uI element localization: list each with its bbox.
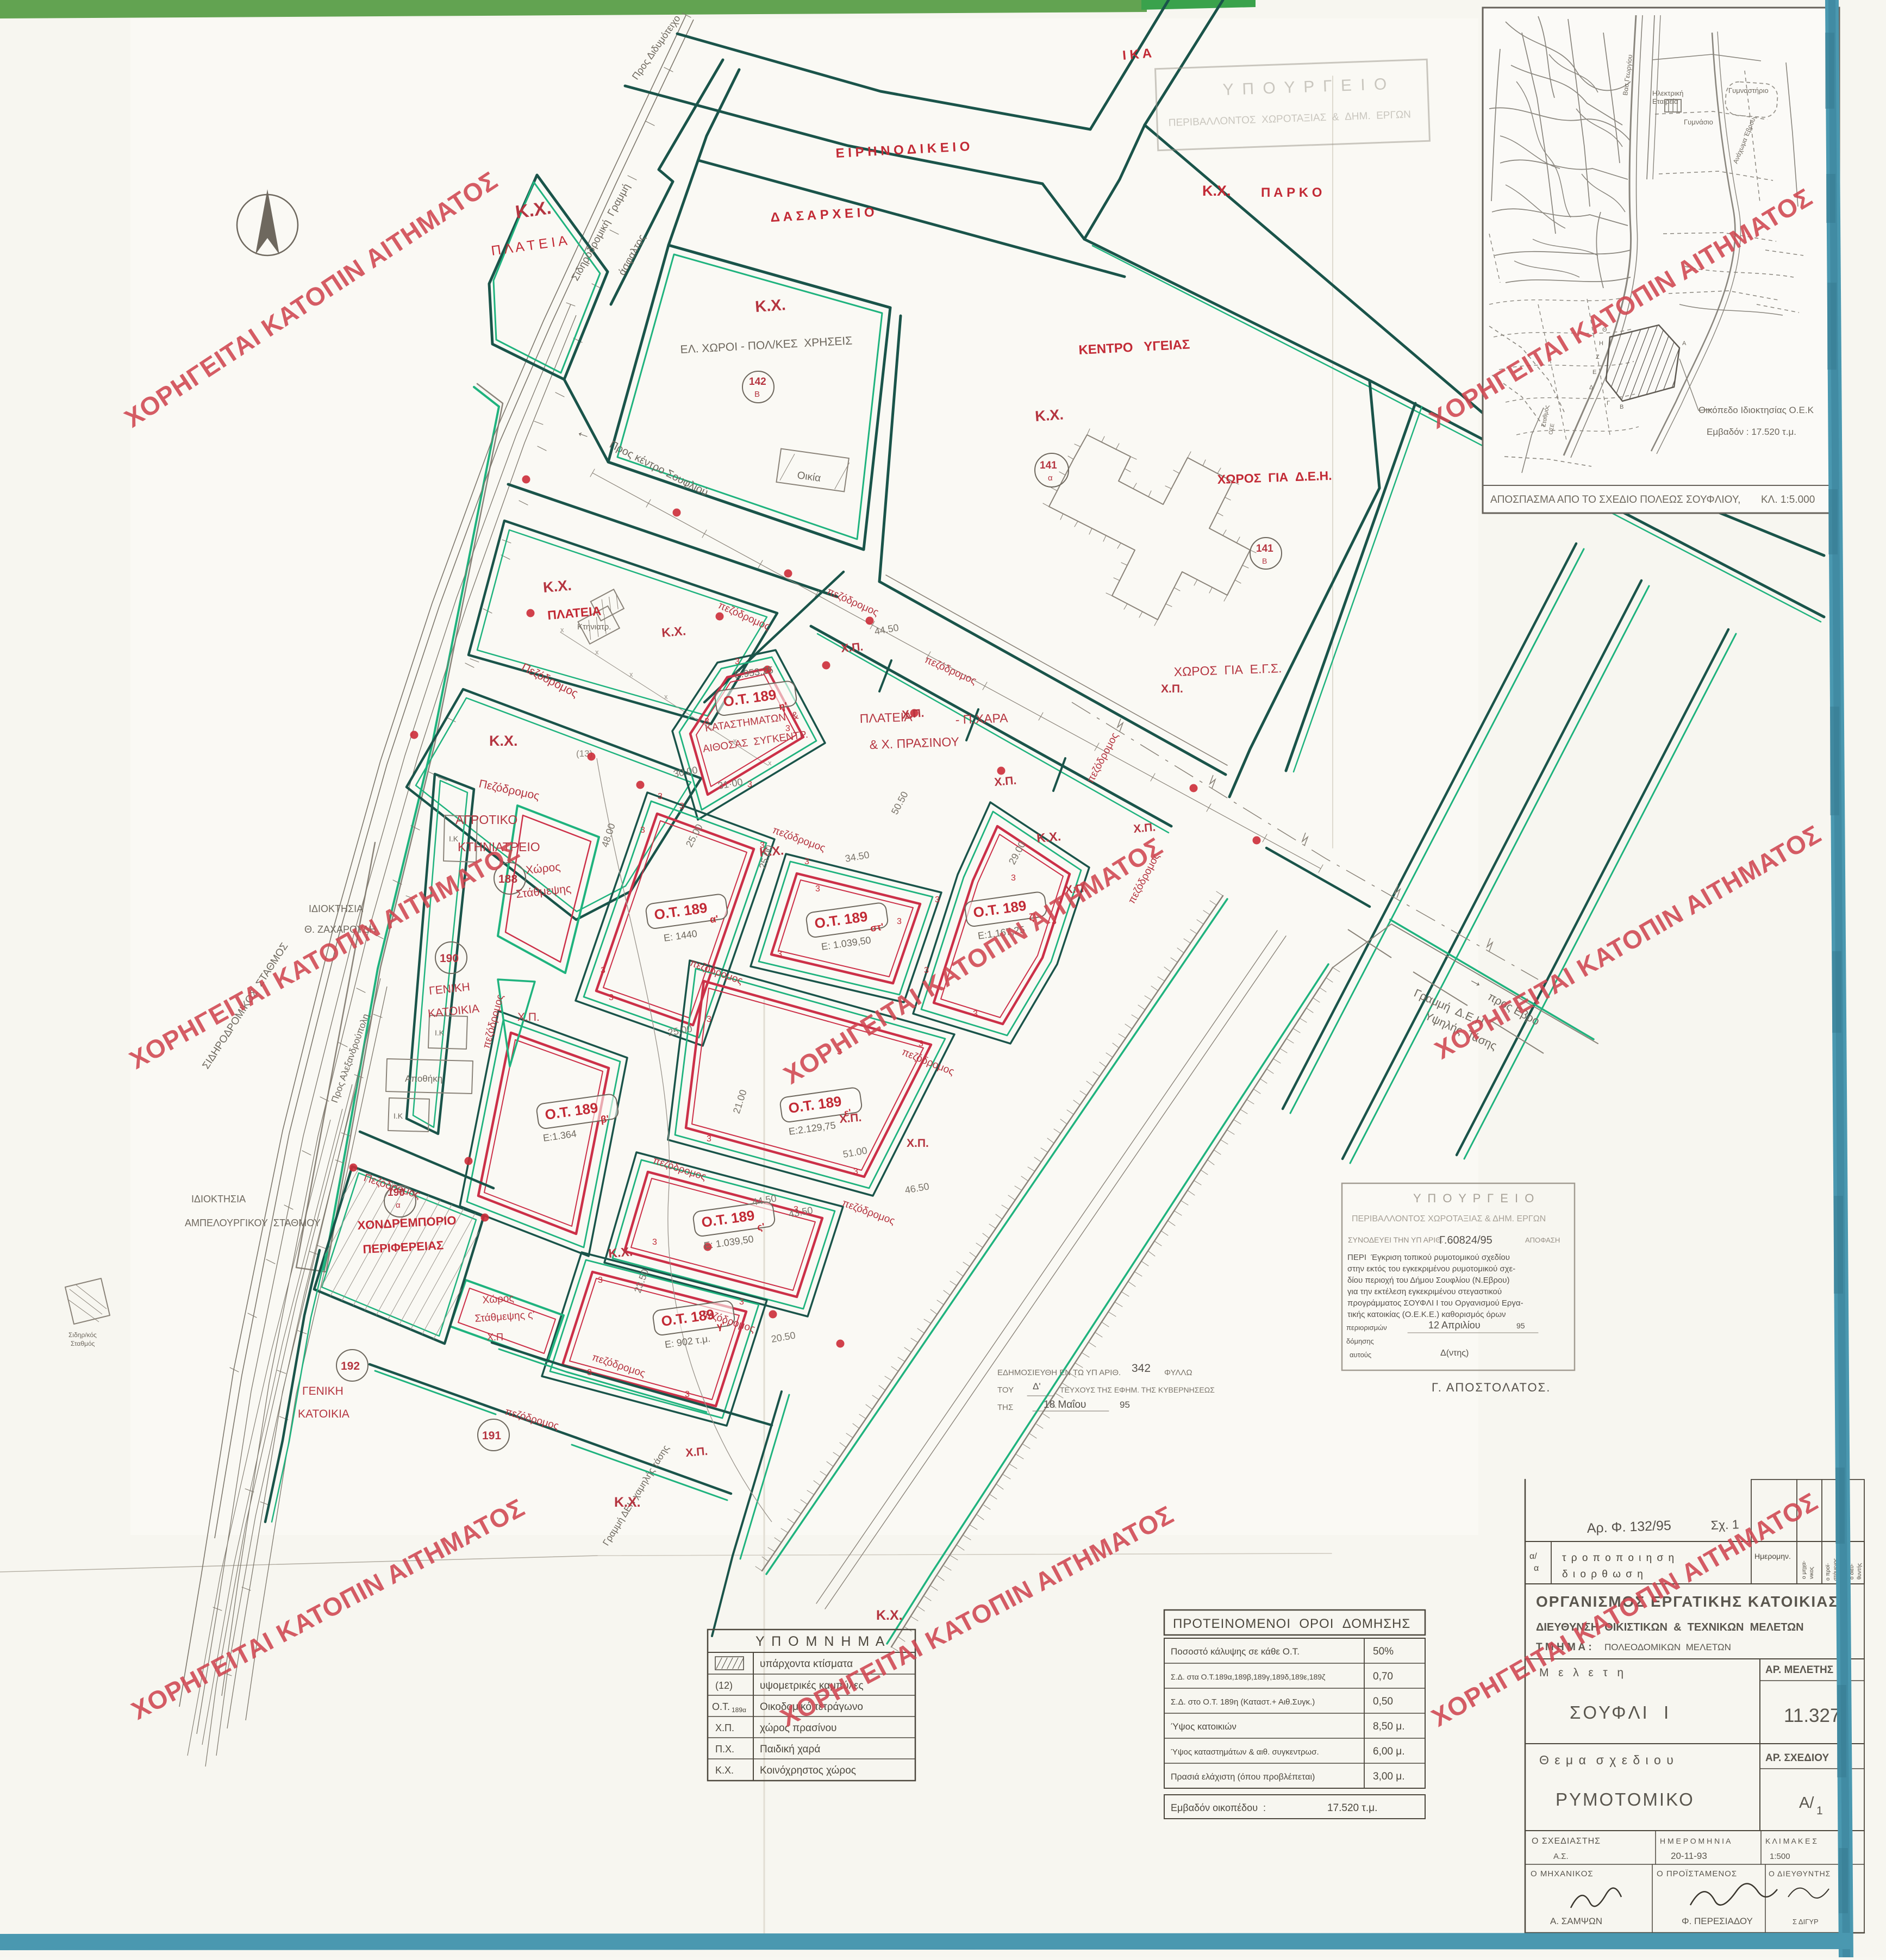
svg-text:Ημερομην.: Ημερομην. [1754,1552,1791,1560]
svg-text:ΚΑΤΟΙΚΙΑ: ΚΑΤΟΙΚΙΑ [298,1408,349,1420]
svg-text:192: 192 [341,1360,360,1372]
svg-text:3: 3 [919,1039,923,1048]
svg-text:11.327: 11.327 [1784,1705,1840,1726]
svg-text:x: x [768,759,772,767]
svg-text:Χ.Π.: Χ.Π. [901,707,925,721]
svg-text:ΚΛ. 1:5.000: ΚΛ. 1:5.000 [1761,494,1815,505]
svg-text:Β: Β [754,390,760,399]
svg-text:3: 3 [739,1297,744,1307]
svg-text:17.520 τ.μ.: 17.520 τ.μ. [1327,1802,1377,1814]
svg-text:ΑΠΟΦΑΣΗ: ΑΠΟΦΑΣΗ [1525,1236,1560,1244]
svg-text:ΟΡΓΑΝΙΣΜΟΣ ΕΡΓΑΤΙΚΗΣ ΚΑΤΟΙΚΙΑΣ: ΟΡΓΑΝΙΣΜΟΣ ΕΡΓΑΤΙΚΗΣ ΚΑΤΟΙΚΙΑΣ [1536,1593,1839,1610]
svg-text:3: 3 [935,895,940,904]
svg-text:Οικόπεδο Ιδιοκτησίας Ο.Ε.Κ: Οικόπεδο Ιδιοκτησίας Ο.Ε.Κ [1698,405,1814,415]
svg-text:Ο ΣΧΕΔΙΑΣΤΗΣ: Ο ΣΧΕΔΙΑΣΤΗΣ [1532,1837,1601,1846]
svg-text:Κ.Χ.: Κ.Χ. [1202,183,1231,199]
svg-text:ΑΡ. ΣΧΕΔΙΟΥ: ΑΡ. ΣΧΕΔΙΟΥ [1765,1752,1829,1764]
svg-text:1: 1 [1816,1805,1823,1817]
svg-text:δόμησης: δόμησης [1346,1337,1374,1345]
svg-text:α/: α/ [1529,1552,1537,1561]
svg-text:189α: 189α [732,1706,746,1714]
svg-text:Χ.Π.: Χ.Π. [994,775,1017,789]
svg-text:ΠΕΡΙΒΑΛΛΟΝΤΟΣ ΧΩΡΟΤΑΞΙΑΣ & ΔΗΜ: ΠΕΡΙΒΑΛΛΟΝΤΟΣ ΧΩΡΟΤΑΞΙΑΣ & ΔΗΜ. ΕΡΓΩΝ [1352,1214,1546,1224]
svg-text:Αρ. Φ. 132/95: Αρ. Φ. 132/95 [1587,1518,1671,1536]
svg-text:Εμβαδόν οικοπέδου :: Εμβαδόν οικοπέδου : [1171,1802,1266,1813]
svg-text:3: 3 [707,1015,711,1024]
svg-text:3: 3 [601,966,605,975]
svg-text:Χ.Π.: Χ.Π. [839,1112,862,1126]
svg-text:Ποσοστό κάλυψης σε κάθε Ο.Τ.: Ποσοστό κάλυψης σε κάθε Ο.Τ. [1171,1646,1300,1657]
svg-text:Χ.Π.: Χ.Π. [840,641,864,655]
svg-text:Κ.Χ.: Κ.Χ. [715,1765,734,1776]
svg-text:Κ.Χ.: Κ.Χ. [876,1608,903,1623]
svg-text:Κ.Χ.: Κ.Χ. [1036,829,1061,845]
svg-text:x: x [560,626,564,634]
svg-text:ΑΠΟΣΠΑΣΜΑ ΑΠΟ ΤΟ ΣΧΕΔΙΟ ΠΟΛΕΩΣ: ΑΠΟΣΠΑΣΜΑ ΑΠΟ ΤΟ ΣΧΕΔΙΟ ΠΟΛΕΩΣ ΣΟΥΦΛΙΟΥ, [1490,494,1740,505]
svg-text:ΤΟΥ: ΤΟΥ [997,1385,1014,1395]
svg-text:προγράμματος ΣΟΥΦΛΙ Ι του Οργα: προγράμματος ΣΟΥΦΛΙ Ι του Οργανισμού Εργ… [1347,1299,1523,1308]
svg-text:δίου περιοχή του Δήμου Σουφλίο: δίου περιοχή του Δήμου Σουφλίου (Ν.Εβρου… [1347,1276,1509,1285]
svg-text:3: 3 [652,1238,657,1247]
svg-text:Χ.Π.: Χ.Π. [715,1722,734,1733]
svg-text:ΑΡ. ΜΕΛΕΤΗΣ: ΑΡ. ΜΕΛΕΤΗΣ [1765,1664,1833,1676]
svg-text:Δ(ντης): Δ(ντης) [1440,1349,1469,1358]
svg-text:x: x [595,648,599,656]
svg-text:3: 3 [640,826,645,835]
svg-text:3: 3 [704,717,709,726]
svg-text:Γ.60824/95: Γ.60824/95 [1439,1234,1492,1246]
svg-text:ΑΓΡΟΤΙΚΟ: ΑΓΡΟΤΙΚΟ [455,813,517,827]
svg-text:α: α [396,1201,401,1210]
svg-text:Η Μ Ε Ρ Ο Μ Η Ν Ι Α: Η Μ Ε Ρ Ο Μ Η Ν Ι Α [1660,1837,1731,1845]
svg-text:3: 3 [679,802,684,811]
svg-text:12 Απριλίου: 12 Απριλίου [1428,1320,1481,1331]
svg-text:Γ. ΑΠΟΣΤΟΛΑΤΟΣ.: Γ. ΑΠΟΣΤΟΛΑΤΟΣ. [1432,1381,1551,1394]
svg-text:3: 3 [609,993,614,1002]
svg-text:ΣΟΥΦΛΙ Ι: ΣΟΥΦΛΙ Ι [1570,1702,1671,1722]
svg-text:τικής κατοικίας (Ο.Ε.Κ.Ε.) καθ: τικής κατοικίας (Ο.Ε.Κ.Ε.) καθορισμός όρ… [1347,1310,1506,1319]
svg-text:Ύψος καταστημάτων & αιθ. συγκε: Ύψος καταστημάτων & αιθ. συγκεντρωσ. [1171,1747,1319,1757]
svg-text:Α.Σ.: Α.Σ. [1553,1852,1569,1861]
svg-text:95: 95 [1516,1321,1525,1330]
svg-text:νικος: νικος [1809,1566,1815,1579]
svg-text:Σ.Δ. στο Ο.Τ. 189η (Καταστ.+ Α: Σ.Δ. στο Ο.Τ. 189η (Καταστ.+ Αιθ.Συγκ.) [1171,1697,1315,1707]
svg-text:342: 342 [1132,1362,1151,1375]
svg-text:Ι Κ Α: Ι Κ Α [1122,46,1152,63]
svg-text:Φ. ΠΕΡΕΣΙΑΔΟΥ: Φ. ΠΕΡΕΣΙΑΔΟΥ [1682,1916,1753,1926]
svg-text:Χ.Π.: Χ.Π. [685,1445,708,1459]
svg-text:Η: Η [1599,340,1603,347]
svg-text:3,00 μ.: 3,00 μ. [1373,1771,1404,1782]
svg-text:ΙΔΙΟΚΤΗΣΙΑ: ΙΔΙΟΚΤΗΣΙΑ [191,1194,246,1204]
svg-text:θυντής: θυντής [1856,1563,1863,1580]
svg-text:1:500: 1:500 [1770,1852,1790,1861]
svg-text:Ι.Κ: Ι.Κ [435,1028,445,1037]
svg-text:Δ': Δ' [1033,1381,1041,1391]
svg-text:3: 3 [1011,873,1016,883]
svg-text:Εταιρεία: Εταιρεία [1652,97,1678,105]
svg-text:(12): (12) [715,1680,733,1691]
svg-text:Υ Π Ο Μ Ν Η Μ Α: Υ Π Ο Μ Ν Η Μ Α [755,1634,886,1649]
svg-text:Σ ΔΙΓΥΡ: Σ ΔΙΓΥΡ [1793,1918,1819,1926]
svg-text:Κοινόχρηστος χώρος: Κοινόχρηστος χώρος [760,1765,856,1776]
svg-text:3: 3 [897,917,902,926]
svg-text:3: 3 [658,792,663,801]
svg-text:Χ.Π: Χ.Π [487,1332,503,1343]
svg-text:Ο ΔΙΕΥΘΥΝΤΗΣ: Ο ΔΙΕΥΘΥΝΤΗΣ [1769,1869,1831,1878]
svg-text:190: 190 [440,952,459,965]
svg-text:Γυμναστήριο: Γυμναστήριο [1728,86,1769,95]
svg-text:ο προϊ-: ο προϊ- [1825,1563,1831,1581]
svg-text:Σταθμός: Σταθμός [71,1340,95,1347]
svg-text:στην εκτός του εγκεκριμένου ρυ: στην εκτός του εγκεκριμένου ρυμοτομικού … [1347,1264,1515,1274]
svg-text:x: x [664,692,668,701]
svg-text:ΡΥΜΟΤΟΜΙΚΟ: ΡΥΜΟΤΟΜΙΚΟ [1556,1789,1695,1809]
svg-text:3: 3 [747,780,752,789]
svg-text:Υ Π Ο Υ Ρ Γ Ε Ι Ο: Υ Π Ο Υ Ρ Γ Ε Ι Ο [1413,1191,1535,1205]
svg-text:0,50: 0,50 [1373,1696,1393,1707]
svg-text:95: 95 [1120,1400,1130,1410]
svg-text:3: 3 [587,1368,592,1377]
svg-text:Κτηνιατρ.: Κτηνιατρ. [577,622,611,632]
svg-text:Κ.Χ.: Κ.Χ. [614,1495,641,1510]
svg-text:ΑΜΠΕΛΟΥΡΓΙΚΟΥ ΣΤΑΘΜΟΥ: ΑΜΠΕΛΟΥΡΓΙΚΟΥ ΣΤΑΘΜΟΥ [185,1218,321,1228]
svg-text:Ύψος κατοικιών: Ύψος κατοικιών [1171,1721,1236,1732]
svg-text:Α/: Α/ [1799,1794,1814,1812]
svg-text:Ζ: Ζ [1596,354,1600,360]
svg-text:Κ.Χ.: Κ.Χ. [489,733,518,749]
svg-text:3: 3 [853,1167,858,1176]
svg-text:3: 3 [598,1276,603,1285]
svg-text:191: 191 [482,1430,501,1442]
svg-text:Μ ε λ ε τ η: Μ ε λ ε τ η [1539,1666,1625,1679]
svg-text:α: α [1048,473,1053,483]
svg-text:Κ Λ Ι Μ Α Κ Ε Σ: Κ Λ Ι Μ Α Κ Ε Σ [1765,1837,1817,1845]
svg-text:Γ: Γ [1607,400,1610,407]
svg-text:3: 3 [777,950,782,959]
svg-text:Θ ε μ α σ χ ε δ ι ο υ: Θ ε μ α σ χ ε δ ι ο υ [1539,1753,1675,1767]
svg-text:Β: Β [1620,404,1623,410]
svg-text:Α: Α [1682,340,1687,347]
svg-text:Αποθήκη: Αποθήκη [405,1073,442,1084]
svg-text:ΤΗΣ: ΤΗΣ [997,1403,1013,1412]
svg-text:3: 3 [785,724,790,733]
svg-text:αυτούς: αυτούς [1350,1351,1371,1359]
svg-text:ΣΥΝΟΔΕΥΕΙ ΤΗΝ ΥΠ ΑΡΙΘ.: ΣΥΝΟΔΕΥΕΙ ΤΗΝ ΥΠ ΑΡΙΘ. [1348,1235,1444,1244]
svg-text:Κ.Χ.: Κ.Χ. [754,296,786,316]
svg-text:Π.Χ.: Π.Χ. [715,1744,734,1755]
svg-text:3: 3 [685,1390,690,1399]
svg-text:6,00 μ.: 6,00 μ. [1373,1746,1404,1757]
svg-text:ς': ς' [757,1221,765,1233]
svg-text:για την εκτέλεση εγκεκριμένου: για την εκτέλεση εγκεκριμένου στεγαστικο… [1347,1287,1502,1296]
svg-text:Ο ΠΡΟΪΣΤΑΜΕΝΟΣ: Ο ΠΡΟΪΣΤΑΜΕΝΟΣ [1657,1869,1737,1878]
svg-text:Ο.Τ.: Ο.Τ. [712,1701,730,1712]
svg-text:ΠΕΡΙ Έγκριση τοπικού ρυμοτομι: ΠΕΡΙ Έγκριση τοπικού ρυμοτομικού σχεδίου [1347,1253,1510,1262]
svg-text:3: 3 [760,841,765,850]
svg-text:Εμβαδόν : 17.520 τ.μ.: Εμβαδόν : 17.520 τ.μ. [1707,427,1796,437]
svg-text:υπάρχοντα κτίσματα: υπάρχοντα κτίσματα [760,1658,853,1670]
svg-text:3: 3 [815,884,820,894]
svg-text:141: 141 [1256,543,1273,554]
svg-text:Σιδηρ/κός: Σιδηρ/κός [68,1331,97,1339]
svg-text:τ ρ ο π ο π ο ι η σ η: τ ρ ο π ο π ο ι η σ η [1562,1552,1675,1564]
svg-text:50%: 50% [1373,1646,1394,1657]
svg-text:β': β' [600,1113,610,1125]
svg-text:Β: Β [1262,557,1267,565]
svg-text:ΠΡΟΤΕΙΝΟΜΕΝΟΙ ΟΡΟΙ ΔΟΜΗΣΗΣ: ΠΡΟΤΕΙΝΟΜΕΝΟΙ ΟΡΟΙ ΔΟΜΗΣΗΣ [1173,1616,1410,1631]
svg-text:ΓΕΝΙΚΗ: ΓΕΝΙΚΗ [302,1385,344,1397]
svg-text:στ': στ' [870,921,884,934]
svg-text:Χ.Π.: Χ.Π. [907,1137,929,1150]
svg-text:0,70: 0,70 [1373,1671,1393,1682]
svg-text:18 Μαΐου: 18 Μαΐου [1044,1399,1086,1410]
svg-text:Κ.Χ.: Κ.Χ. [661,623,686,640]
svg-text:3: 3 [707,1134,711,1144]
svg-text:Κ.Χ.: Κ.Χ. [1034,406,1064,425]
svg-text:3: 3 [804,857,809,866]
svg-text:Ο ΜΗΧΑΝΙΚΟΣ: Ο ΜΗΧΑΝΙΚΟΣ [1531,1869,1594,1878]
svg-text:188: 188 [498,873,517,885]
svg-text:Κ.Χ.: Κ.Χ. [608,1244,633,1260]
svg-text:Σ.Δ. στα Ο.Τ.189α,189β,189γ,18: Σ.Δ. στα Ο.Τ.189α,189β,189γ,189δ,189ε,18… [1171,1672,1325,1681]
svg-text:x: x [629,670,633,678]
svg-text:Κ.Χ.: Κ.Χ. [542,577,572,596]
svg-text:Παιδική χαρά: Παιδική χαρά [760,1744,820,1755]
svg-text:Χ.Π.: Χ.Π. [517,1011,540,1023]
svg-text:3: 3 [735,657,740,666]
svg-text:- Π.ΧΑΡΑ: - Π.ΧΑΡΑ [955,711,1008,727]
svg-text:3: 3 [973,1009,978,1019]
svg-text:Χ.Π.: Χ.Π. [1161,683,1183,695]
svg-text:142: 142 [749,376,766,388]
svg-text:α': α' [709,913,719,925]
svg-text:Π Α Ρ Κ Ο: Π Α Ρ Κ Ο [1261,185,1322,200]
svg-text:Γυμνάσιο: Γυμνάσιο [1684,118,1713,126]
svg-text:8,50 μ.: 8,50 μ. [1373,1721,1404,1732]
svg-text:141: 141 [1040,460,1057,471]
svg-text:Α. ΣΑΜΨΩΝ: Α. ΣΑΜΨΩΝ [1550,1916,1602,1926]
svg-text:δ ι ο ρ θ ω σ η: δ ι ο ρ θ ω σ η [1562,1569,1644,1580]
svg-text:3: 3 [794,1205,798,1214]
svg-text:ο μηχα-: ο μηχα- [1801,1560,1807,1579]
svg-text:Χώρος: Χώρος [482,1293,514,1306]
svg-text:ΤΕΥΧΟΥΣ ΤΗΣ ΕΦΗΜ. ΤΗΣ ΚΥΒΕΡΝΗΣ: ΤΕΥΧΟΥΣ ΤΗΣ ΕΦΗΜ. ΤΗΣ ΚΥΒΕΡΝΗΣΕΩΣ [1060,1385,1215,1394]
svg-text:ΠΟΛΕΟΔΟΜΙΚΩΝ ΜΕΛΕΤΩΝ: ΠΟΛΕΟΔΟΜΙΚΩΝ ΜΕΛΕΤΩΝ [1604,1642,1731,1652]
svg-text:α: α [1534,1564,1539,1573]
svg-text:Ι.Κ: Ι.Κ [394,1112,403,1120]
svg-text:20-11-93: 20-11-93 [1671,1851,1707,1861]
svg-text:Δ: Δ [1589,384,1594,391]
svg-text:Ε: Ε [1593,369,1596,376]
svg-text:ΙΔΙΟΚΤΗΣΙΑ: ΙΔΙΟΚΤΗΣΙΑ [309,903,363,914]
svg-text:Ηλεκτρική: Ηλεκτρική [1652,89,1683,97]
svg-text:ΕΔΗΜΟΣΙΕΥΘΗ ΕΝ ΤΩ ΥΠ ΑΡΙΘ.: ΕΔΗΜΟΣΙΕΥΘΗ ΕΝ ΤΩ ΥΠ ΑΡΙΘ. [997,1368,1121,1377]
svg-text:περιορισμών: περιορισμών [1346,1324,1387,1332]
svg-text:η': η' [778,700,788,712]
svg-text:ΦΥΛΛΩ: ΦΥΛΛΩ [1164,1368,1192,1377]
svg-text:Πρασιά ελάχιστη (όπου προβλέπε: Πρασιά ελάχιστη (όπου προβλέπεται) [1171,1772,1315,1782]
